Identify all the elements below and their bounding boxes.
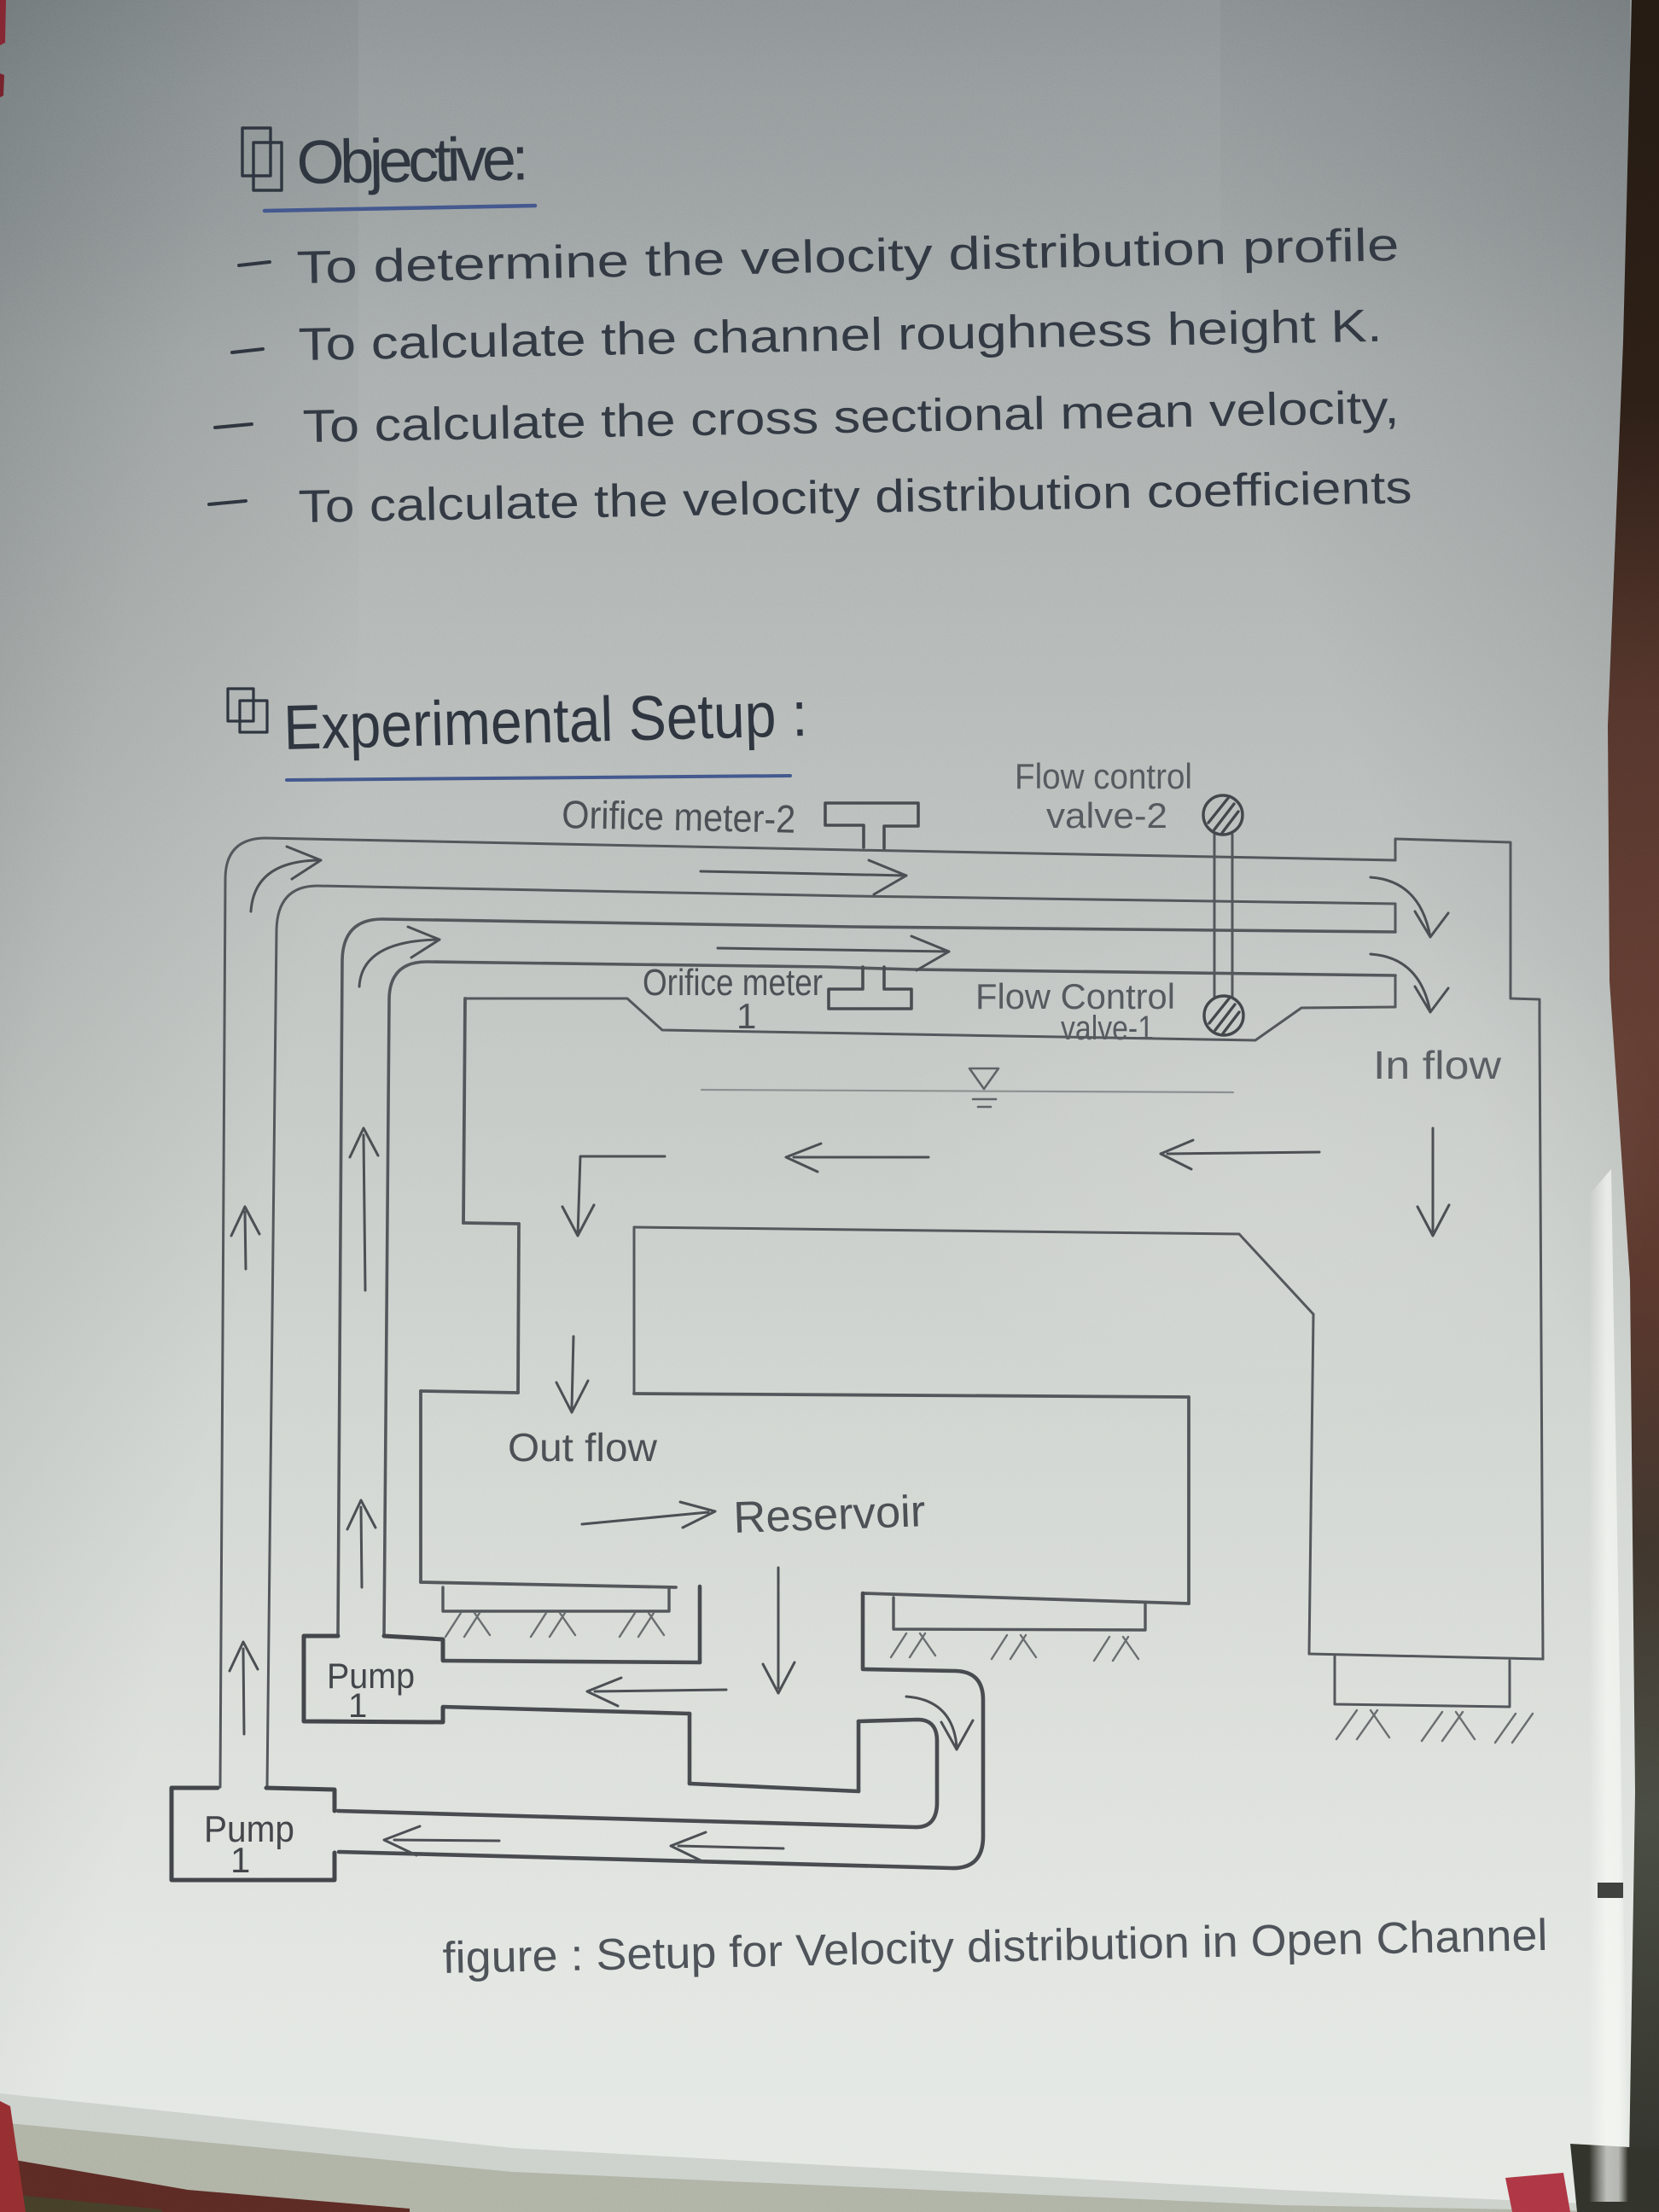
svg-text:Objective:: Objective: <box>296 125 529 197</box>
svg-text:valve-1: valve-1 <box>1061 1010 1154 1047</box>
svg-text:Orifice meter: Orifice meter <box>643 962 823 1004</box>
svg-text:valve-2: valve-2 <box>1046 795 1167 835</box>
svg-text:Experimental Setup :: Experimental Setup : <box>282 678 808 763</box>
svg-text:1: 1 <box>230 1840 250 1880</box>
svg-text:Flow control: Flow control <box>1015 756 1192 796</box>
svg-text:1: 1 <box>348 1687 367 1725</box>
svg-text:In flow: In flow <box>1373 1043 1502 1087</box>
svg-text:Orifice meter-2: Orifice meter-2 <box>562 792 796 841</box>
svg-text:Out flow: Out flow <box>508 1425 658 1470</box>
svg-text:Pump: Pump <box>327 1656 415 1696</box>
svg-text:Reservoir: Reservoir <box>732 1487 926 1543</box>
svg-text:1: 1 <box>736 996 756 1036</box>
